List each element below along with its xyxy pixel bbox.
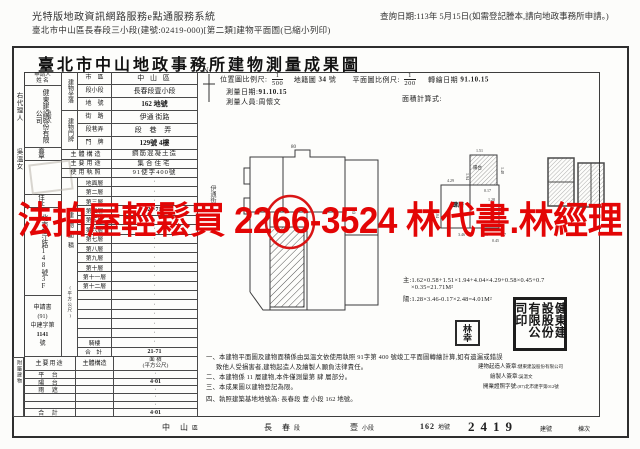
row-value: 段 巷 弄 <box>112 124 198 137</box>
row-value: 長春段壹小段 <box>112 85 198 98</box>
name-seal: 林幸 <box>455 320 480 346</box>
row-value: 伊通 街路 <box>112 111 198 124</box>
row-label: 門 牌 <box>78 137 112 150</box>
floor-row: 第十二層· <box>78 282 198 291</box>
row-value: 中 山 區 <box>112 72 198 85</box>
query-date: 查詢日期:113年 5月15日(如需登記謄本,請向地政事務所申請。) <box>380 10 632 22</box>
redraw-date: 91.10.15 <box>460 76 489 84</box>
plate-section-label: 建物門牌 <box>62 111 78 150</box>
attached-row: 雨 遮· <box>24 386 198 394</box>
builder-company-seal: 健東建設股份有限公司印 <box>513 297 567 351</box>
row-label: 主體構造 <box>62 150 112 160</box>
builder-signature: 建物起造人簽章:健東建設股份有限公司 <box>478 362 563 370</box>
foreclosure-ad-watermark: 法拍屋輕鬆買 2266-3524 林代書.林經理 <box>0 190 640 244</box>
agent-name: 吳溫女 <box>13 148 23 184</box>
seal-row-label: 蓋 章 <box>24 148 62 161</box>
balcony-label: 陽台 <box>473 164 482 171</box>
applicant-name: 健東建設股份有限公司 <box>33 88 47 146</box>
note-line-4: 四、執照建築基地地號為: 長春段 壹 小段 162 地號。 <box>206 394 357 403</box>
row-label: 地 號 <box>78 98 112 111</box>
floor-total-row: 合 計21-71 <box>78 348 198 357</box>
floor-row: 第十一層· <box>78 272 198 281</box>
note-line-2: 二、本建物係 11 層建物,本件僅測量第 肆 層部分。 <box>206 372 351 381</box>
area-calc-label: 面積計算式: <box>402 94 442 104</box>
floor-row: · <box>78 310 198 319</box>
footer-land-no: 162 地號 <box>420 422 450 431</box>
floor-row: 第九層· <box>78 253 198 262</box>
row-value: 91使字400號 <box>112 169 198 178</box>
footer-section: 長 春段 <box>264 422 300 433</box>
floor-row: 第十層· <box>78 263 198 272</box>
row-label: 使用執照 <box>62 169 112 178</box>
svg-text:N: N <box>203 66 209 75</box>
north-arrow-icon: N <box>201 64 217 104</box>
attached-header-struct: 主體構造 <box>76 357 114 371</box>
license-number: 開業證照字號:(87)北市建字第012號 <box>483 382 559 390</box>
cadastre-no: 34 <box>318 76 326 84</box>
floor-row: · <box>78 329 198 338</box>
drafter-signature: 繪製人簽章:吳溫文 <box>490 372 533 380</box>
attached-header-area: 面 積 (平方公尺) <box>114 357 198 371</box>
applicant-side-note: 負責人 <box>47 100 52 134</box>
footer-dong: 棟次 <box>578 424 590 433</box>
floor-row: · <box>78 300 198 309</box>
scale-row: 位置圖比例尺: 1500 地籍圖 34 號 平面圖比例尺: 1200 轉繪日期 … <box>220 72 489 88</box>
footer-building-no: 2419 <box>468 419 518 435</box>
location-scale-fraction: 1500 <box>272 72 284 88</box>
row-value: 162 地號 <box>112 98 198 111</box>
footer-district: 中 山區 <box>162 422 198 433</box>
application-number-cell: 申請書 (91) 中建字第 1141 號 <box>24 296 62 357</box>
location-section-label: 建物坐落 <box>62 72 78 111</box>
footer-subsection: 壹小段 <box>350 422 374 433</box>
row-label: 市 區 <box>78 72 112 85</box>
agent-label: 右代理人 <box>13 92 23 144</box>
row-value: 鋼筋混凝土造 <box>112 150 198 160</box>
attached-table: 平 台· 陽 台4·01 雨 遮· · · 合 計4·01 <box>24 371 198 417</box>
lot-number: 80 <box>291 145 297 150</box>
attached-total-row: 合 計4·01 <box>24 409 198 417</box>
scanned-survey-document-page: 光特版地政資訊網路服務e點通服務系統 臺北市中山區長春段三小段(建號:02419… <box>0 0 640 449</box>
plan-scale-label: 平面圖比例尺: <box>352 76 399 84</box>
redraw-label: 轉繪日期 <box>428 76 458 84</box>
row-value: 129號 4樓 <box>112 137 198 150</box>
floor-row: 騎樓· <box>78 338 198 347</box>
row-label: 主要用途 <box>62 160 112 169</box>
row-label: 段巷弄 <box>78 124 112 137</box>
svg-text:1.94: 1.94 <box>465 173 470 180</box>
survey-date-row: 測量日期:91.10.15 <box>226 87 287 97</box>
svg-text:1.48: 1.48 <box>500 167 505 174</box>
attached-row: · <box>24 394 198 402</box>
applicant-header: 申請人 姓 名 <box>24 72 62 86</box>
row-label: 街 路 <box>78 111 112 124</box>
floor-row: · <box>78 291 198 300</box>
document-subtitle: 臺北市中山區長春段三小段(建號:02419-000)[第二類]建物平面圖(已縮小… <box>32 24 331 36</box>
svg-text:1.51: 1.51 <box>476 148 483 153</box>
plan-scale-fraction: 1200 <box>404 72 416 88</box>
row-value: 集合住宅 <box>112 160 198 169</box>
attached-section-label: 附屬建物 <box>13 357 24 417</box>
cadastre-label: 地籍圖 <box>294 76 317 84</box>
note-line-1b: 致他人受損害者,建物起造人及繪製人願負法律責任。 <box>216 362 367 371</box>
floor-row: 第八層· <box>78 244 198 253</box>
system-title: 光特版地政資訊網路服務e點通服務系統 <box>32 8 215 23</box>
floor-row: 地面層· <box>78 178 198 187</box>
location-scale-label: 位置圖比例尺: <box>220 76 267 84</box>
applicant-name-cell: 健東建設股份有限公司 負責人 <box>24 86 62 148</box>
floor-row: · <box>78 319 198 328</box>
row-label: 段小段 <box>78 85 112 98</box>
svg-text:4.29: 4.29 <box>447 178 454 183</box>
note-line-3: 三、本成果圖以建物登記為限。 <box>206 382 297 391</box>
footer-building-suffix: 建號 <box>540 424 552 433</box>
